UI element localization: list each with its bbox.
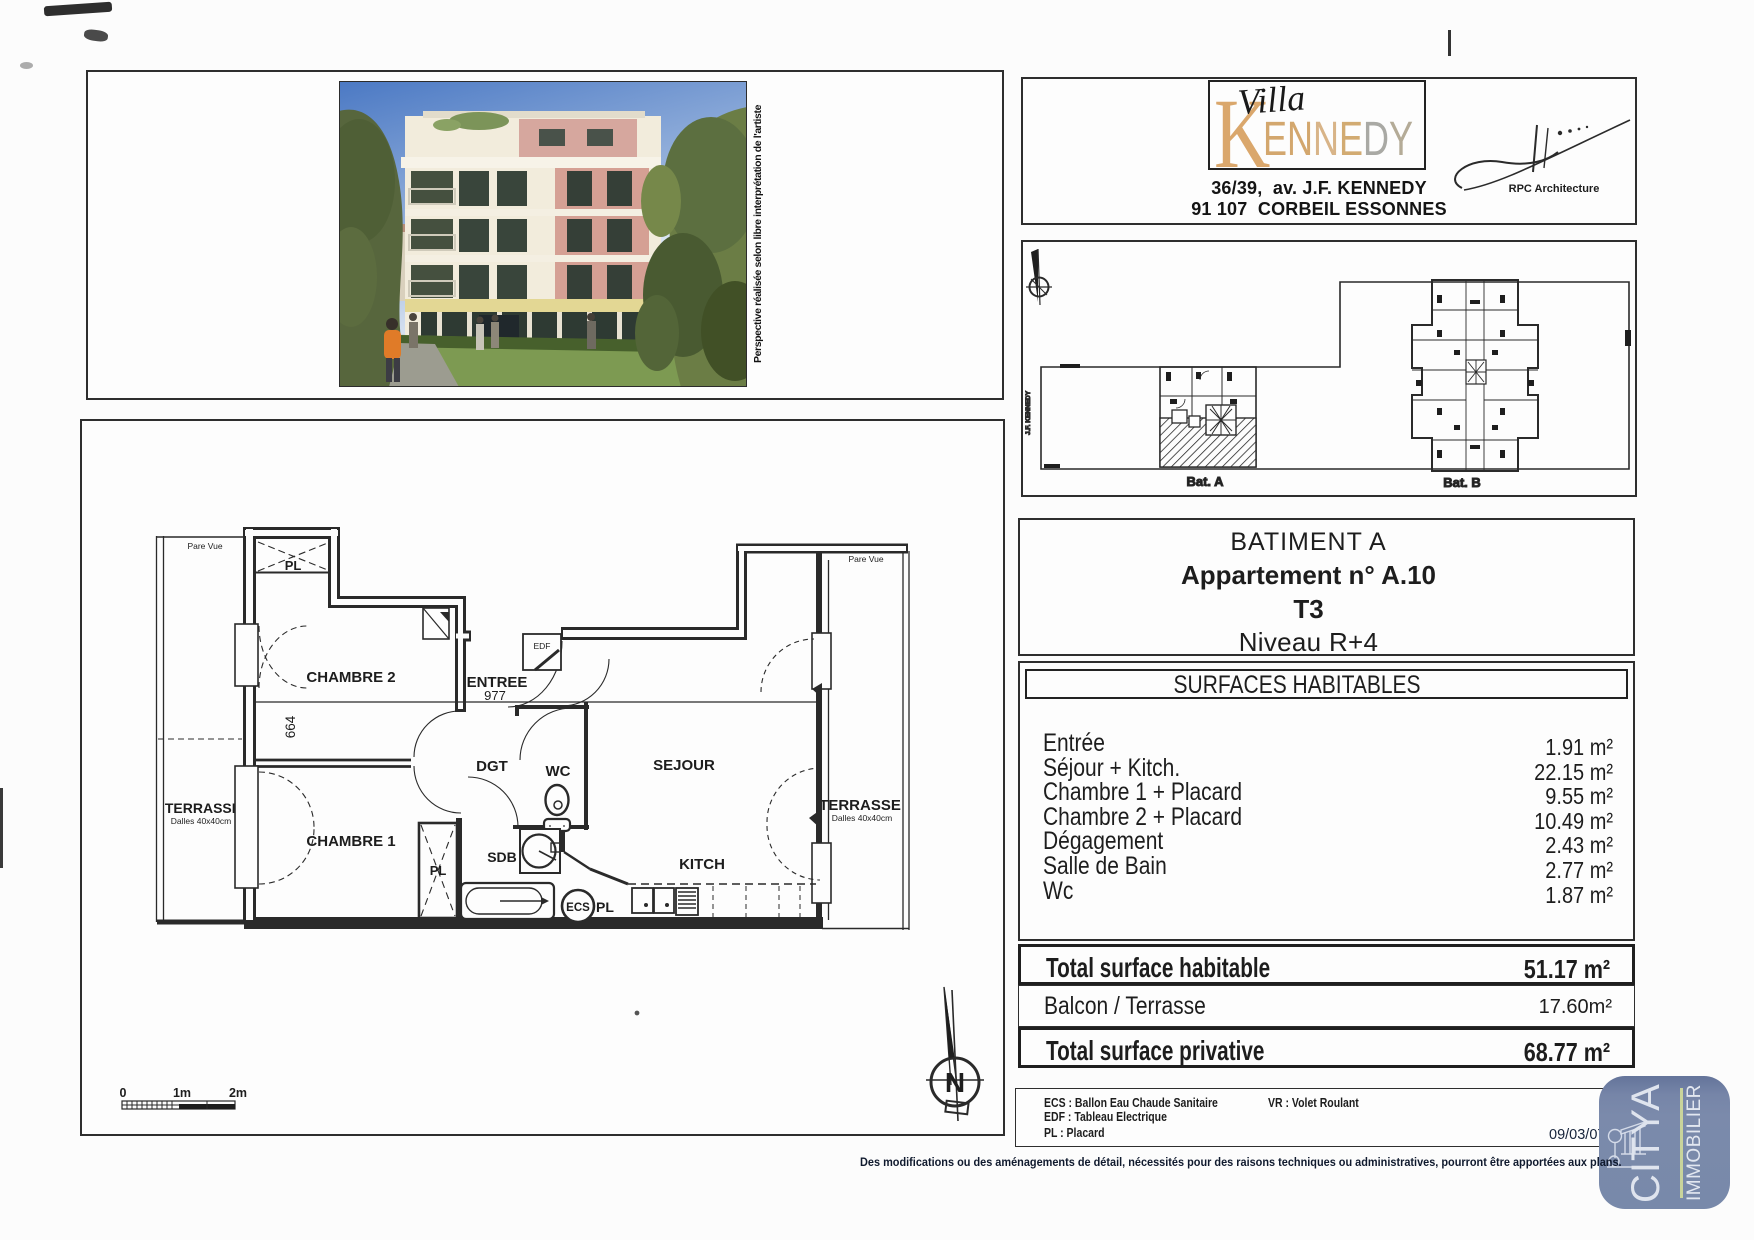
svg-text:977: 977 — [484, 688, 506, 703]
svg-text:SDB: SDB — [487, 849, 517, 865]
svg-text:EDF: EDF — [534, 641, 551, 651]
svg-text:Dalles 40x40cm: Dalles 40x40cm — [832, 813, 892, 823]
svg-text:Bat. B: Bat. B — [1443, 475, 1481, 490]
svg-text:1m: 1m — [173, 1086, 191, 1100]
svg-text:SEJOUR: SEJOUR — [653, 757, 715, 774]
svg-text:0: 0 — [120, 1086, 127, 1100]
svg-text:DGT: DGT — [476, 758, 508, 775]
svg-text:Dalles 40x40cm: Dalles 40x40cm — [171, 816, 231, 826]
svg-text:2m: 2m — [229, 1086, 247, 1100]
svg-text:PL: PL — [430, 863, 447, 878]
svg-text:CHAMBRE 1: CHAMBRE 1 — [306, 833, 395, 850]
svg-text:CHAMBRE 2: CHAMBRE 2 — [306, 669, 395, 686]
svg-text:N: N — [945, 1067, 965, 1098]
svg-text:TERRASSE: TERRASSE — [165, 800, 241, 816]
svg-text:PL: PL — [596, 899, 614, 915]
svg-text:Pare Vue: Pare Vue — [187, 541, 222, 551]
svg-text:J.F. KENNEDY: J.F. KENNEDY — [1025, 390, 1032, 435]
svg-text:KITCH: KITCH — [679, 856, 725, 873]
svg-text:WC: WC — [546, 763, 571, 780]
svg-text:ECS: ECS — [566, 902, 590, 914]
svg-text:RPC Architecture: RPC Architecture — [1509, 183, 1600, 195]
svg-text:Pare Vue: Pare Vue — [848, 554, 883, 564]
svg-text:664: 664 — [283, 715, 298, 738]
svg-text:TERRASSE: TERRASSE — [819, 797, 901, 814]
svg-text:Bat. A: Bat. A — [1186, 474, 1224, 489]
svg-text:PL: PL — [285, 558, 302, 573]
